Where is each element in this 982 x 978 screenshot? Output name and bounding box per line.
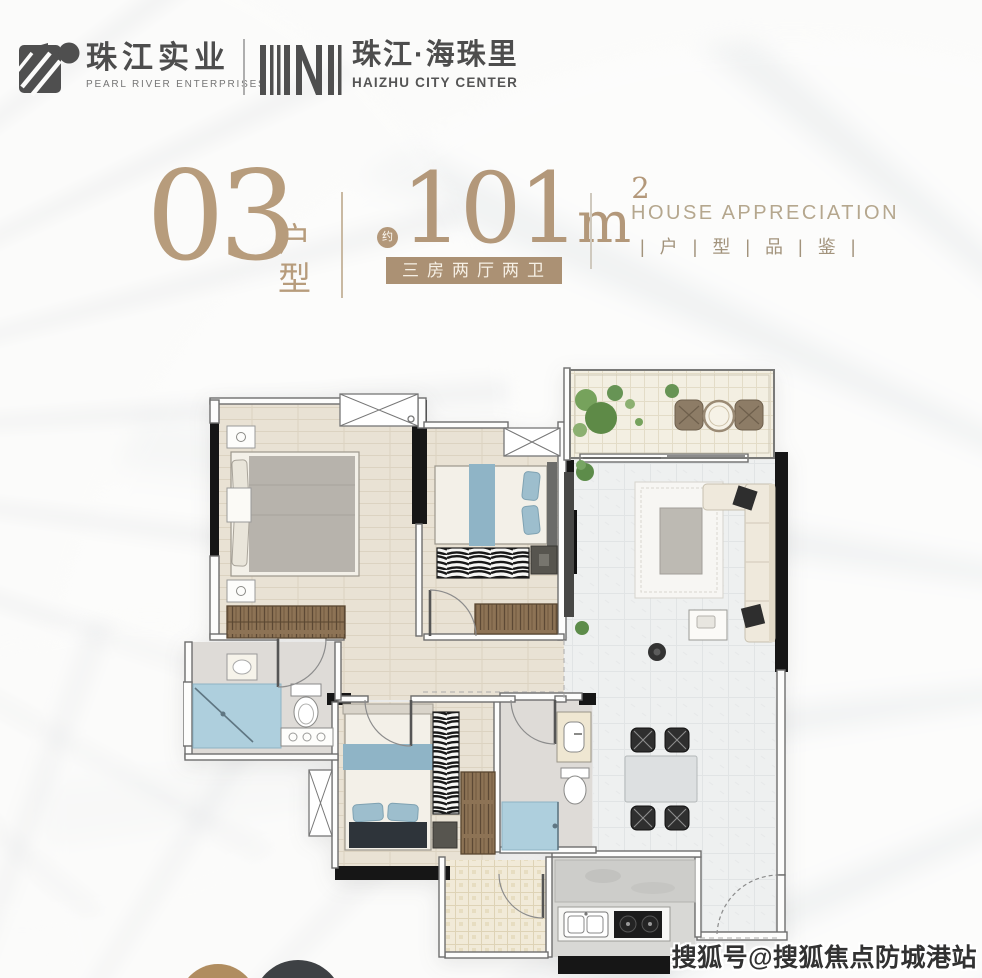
subtitle-en: HOUSE APPRECIATION xyxy=(631,202,899,225)
bed-blanket xyxy=(349,822,427,848)
area-exponent: 2 xyxy=(631,171,649,205)
brand-primary: 珠江实业 PEARL RIVER ENTERPRISES xyxy=(86,41,267,90)
plant xyxy=(575,621,589,635)
side-table xyxy=(433,822,457,848)
area-figure: 101m2 xyxy=(401,160,650,257)
shower xyxy=(502,802,558,850)
header: 珠江实业 PEARL RIVER ENTERPRISES 珠江· xyxy=(0,0,982,120)
unit-type-char-2: 型 xyxy=(278,259,311,298)
corridor xyxy=(338,638,566,700)
foyer xyxy=(445,860,546,954)
toilet xyxy=(564,776,586,804)
haizhu-logo-icon xyxy=(260,45,346,100)
bed-runner xyxy=(469,464,495,546)
area-value: 101 xyxy=(401,152,577,265)
shower xyxy=(193,684,281,748)
unit-type-char-1: 户 xyxy=(278,220,311,259)
kitchen-counter xyxy=(555,860,695,902)
coffee-table xyxy=(660,508,702,574)
brand-secondary-cn: 珠江·海珠里 xyxy=(352,40,519,72)
tv-console xyxy=(564,472,574,617)
bed-runner xyxy=(343,744,433,770)
brand-secondary: 珠江·海珠里 HAIZHU CITY CENTER xyxy=(352,40,519,90)
unit-number: 03 xyxy=(146,152,292,282)
header-divider xyxy=(243,39,245,95)
nightstand xyxy=(227,580,255,602)
unit-type-label: 户 型 xyxy=(278,220,311,298)
brand-secondary-en: HAIZHU CITY CENTER xyxy=(352,75,519,90)
headboard xyxy=(547,462,557,548)
zebra-rug xyxy=(433,712,459,814)
dresser xyxy=(227,488,251,522)
brand-primary-en: PEARL RIVER ENTERPRISES xyxy=(86,79,267,90)
title-divider-1 xyxy=(341,192,343,298)
master-bedroom-furniture xyxy=(227,426,359,638)
zebra-rug xyxy=(437,548,529,578)
poster-page: 珠江实业 PEARL RIVER ENTERPRISES 珠江· xyxy=(0,0,982,978)
wardrobe xyxy=(461,772,495,854)
area-unit: m xyxy=(577,190,631,256)
toilet xyxy=(294,697,318,727)
wardrobe xyxy=(475,604,557,634)
dining-table xyxy=(625,756,697,802)
brand-primary-cn: 珠江实业 xyxy=(86,41,267,75)
title-divider-2 xyxy=(590,193,592,269)
pearl-river-logo-icon xyxy=(18,39,80,102)
approx-circle: 约 xyxy=(377,227,398,248)
sohu-watermark: 搜狐号@搜狐焦点防城港站 xyxy=(672,938,977,974)
floor-plan xyxy=(183,360,803,978)
layout-badge: 三房两厅两卫 xyxy=(386,257,562,284)
subtitle-cn: | 户 | 型 | 品 | 鉴 | xyxy=(640,233,860,259)
nightstand xyxy=(227,426,255,448)
